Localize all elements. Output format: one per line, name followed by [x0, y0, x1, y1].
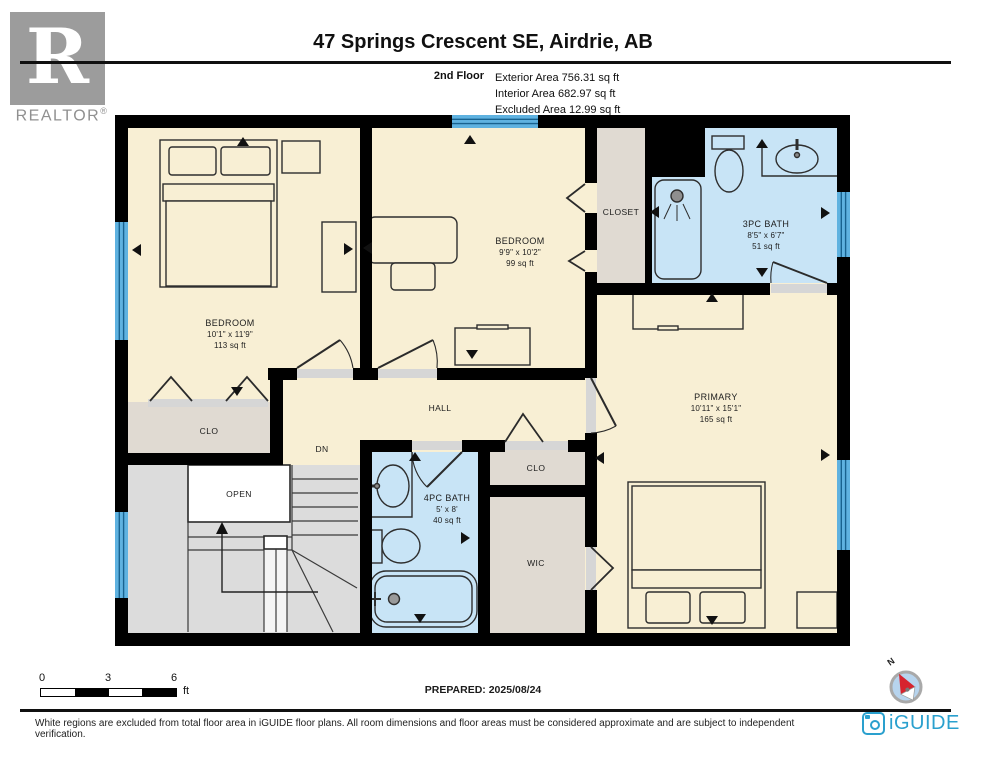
toilet-4pc	[369, 529, 420, 563]
svg-text:10'1" x 11'9": 10'1" x 11'9"	[207, 330, 253, 339]
dresser-left	[322, 222, 356, 292]
desk	[368, 217, 457, 263]
iguide-camera-icon	[862, 712, 885, 735]
nightstand-primary	[797, 592, 837, 628]
svg-text:99 sq ft: 99 sq ft	[506, 259, 534, 268]
footer-divider	[20, 709, 951, 712]
floor-plan-drawing: BEDROOM 10'1" x 11'9" 113 sq ft BEDROOM …	[0, 0, 988, 768]
bed-left	[160, 140, 277, 287]
window-left-upper	[115, 222, 128, 340]
window-top	[452, 115, 538, 128]
svg-text:9'9" x 10'2": 9'9" x 10'2"	[499, 248, 541, 257]
label-clo-left: CLO	[200, 426, 219, 436]
dresser-primary	[633, 293, 743, 329]
nightstand-left	[282, 141, 320, 173]
iguide-logo: iGUIDE	[862, 712, 960, 735]
label-wic: WIC	[527, 558, 545, 568]
svg-text:BEDROOM: BEDROOM	[205, 318, 254, 328]
iguide-wordmark: iGUIDE	[889, 712, 960, 735]
desk-chair	[391, 263, 435, 290]
label-closet: CLOSET	[603, 207, 639, 217]
compass: N	[885, 656, 921, 704]
svg-text:3PC BATH: 3PC BATH	[743, 219, 790, 229]
disclaimer-text: White regions are excluded from total fl…	[35, 718, 835, 740]
label-hall: HALL	[429, 403, 452, 413]
svg-text:165 sq ft: 165 sq ft	[700, 415, 733, 424]
svg-text:5' x 8': 5' x 8'	[436, 505, 458, 514]
window-right-lower	[837, 460, 850, 550]
label-clo-right: CLO	[527, 463, 546, 473]
svg-text:10'11" x 15'1": 10'11" x 15'1"	[691, 404, 742, 413]
shower	[655, 180, 701, 279]
svg-text:8'5" x 6'7": 8'5" x 6'7"	[747, 231, 784, 240]
window-left-lower	[115, 512, 128, 598]
svg-text:40 sq ft: 40 sq ft	[433, 516, 461, 525]
dresser-mid	[455, 328, 530, 365]
svg-text:PRIMARY: PRIMARY	[694, 392, 738, 402]
svg-text:BEDROOM: BEDROOM	[495, 236, 544, 246]
svg-text:51 sq ft: 51 sq ft	[752, 242, 780, 251]
scale-mid: 3	[105, 672, 111, 684]
bathtub	[369, 571, 477, 627]
floor-plan-page: R REALTOR® 47 Springs Crescent SE, Airdr…	[0, 0, 988, 768]
svg-text:113 sq ft: 113 sq ft	[214, 341, 246, 350]
svg-text:4PC BATH: 4PC BATH	[424, 493, 471, 503]
label-dn: DN	[315, 444, 328, 454]
scale-start: 0	[39, 672, 45, 684]
prepared-date: PREPARED: 2025/08/24	[0, 684, 966, 696]
compass-north-label: N	[885, 656, 896, 668]
bed-primary	[628, 482, 765, 628]
scale-end: 6	[171, 672, 177, 684]
window-right-upper	[837, 192, 850, 257]
label-open: OPEN	[226, 489, 252, 499]
